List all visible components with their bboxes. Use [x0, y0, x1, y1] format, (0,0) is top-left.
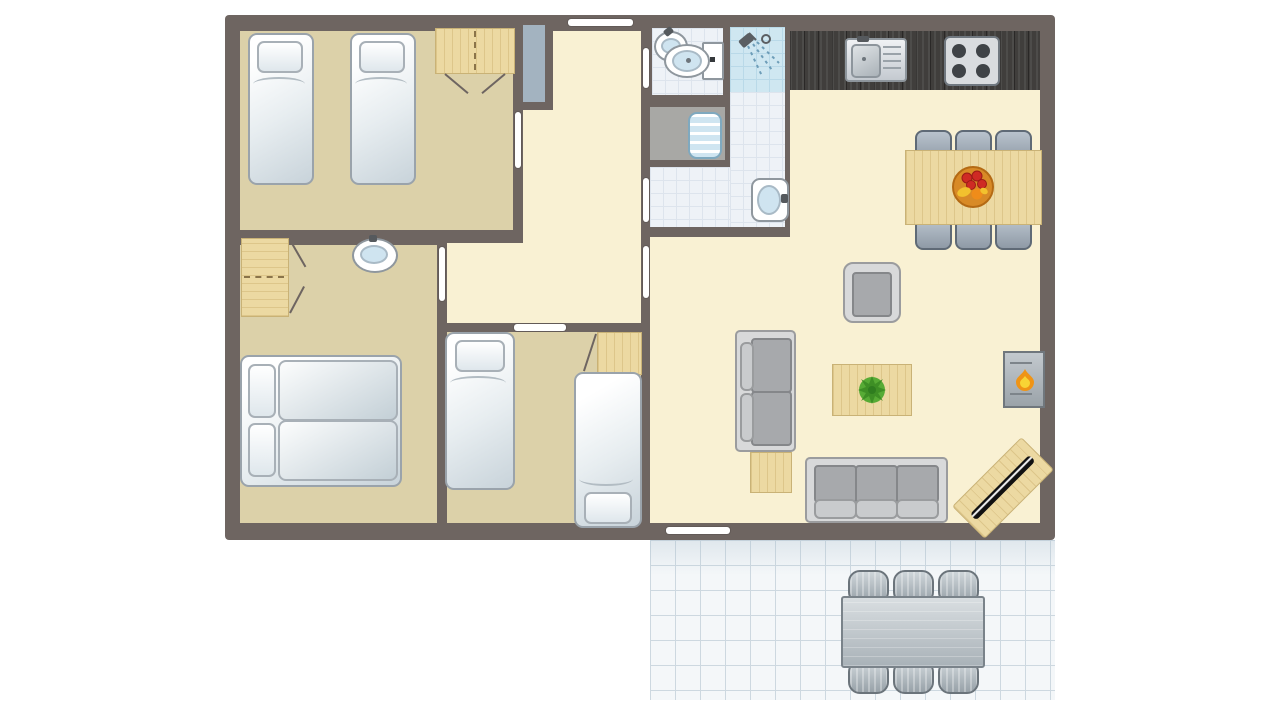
toilet-door: [643, 48, 649, 88]
fruit-bowl: [951, 165, 995, 209]
bathroom-washbasin: [751, 178, 789, 222]
bedroom-2-door: [439, 247, 445, 301]
burner: [976, 64, 990, 78]
sink-faucet: [857, 36, 869, 42]
mattress: [278, 420, 398, 481]
sofa-seat-cushion: [855, 499, 898, 519]
sofa-cushion: [751, 338, 792, 393]
bed-pillow: [584, 492, 632, 524]
shower-head-icon: [736, 30, 784, 86]
sink-drainer: [883, 46, 901, 73]
blanket-edge: [355, 77, 407, 89]
living-room-door: [643, 246, 649, 298]
floor-plan: [0, 0, 1280, 720]
blanket-edge: [450, 376, 506, 388]
bed-pillow: [257, 41, 303, 73]
sofa-seat-cushion: [896, 499, 939, 519]
bed-pillow: [248, 423, 276, 477]
burner: [952, 64, 966, 78]
front-door: [568, 19, 633, 26]
side-table: [750, 452, 792, 493]
fireplace: [1003, 351, 1045, 408]
washbasin-bowl: [360, 245, 388, 264]
double-bed: [240, 355, 402, 487]
washbasin: [352, 238, 398, 273]
garden-table: [841, 596, 985, 668]
terrace-door: [666, 527, 730, 534]
bed-pillow: [248, 364, 276, 418]
kitchen-counter: [790, 31, 1040, 90]
single-bed: [350, 33, 416, 185]
wardrobe-split-line: [244, 276, 284, 278]
sofa-cushion: [751, 391, 792, 446]
bedroom-1-door: [515, 112, 521, 168]
plant: [857, 375, 887, 405]
hall-closet: [523, 25, 545, 102]
hallway-floor-mid: [523, 110, 641, 243]
wardrobe: [435, 28, 515, 74]
dining-table: [905, 150, 1042, 225]
wardrobe: [597, 332, 642, 375]
toilet-drain: [686, 58, 691, 63]
blanket-edge: [253, 77, 305, 89]
sofa-back-cushion: [896, 465, 939, 503]
single-bed: [574, 372, 642, 528]
bathroom-washbasin-bowl: [757, 185, 781, 215]
toilet-bowl: [664, 44, 710, 78]
sofa-back-pillow: [740, 342, 754, 391]
sink-basin: [851, 44, 881, 78]
three-seat-sofa: [805, 457, 948, 523]
hob: [944, 36, 1000, 86]
radiator-appliance: [688, 112, 722, 159]
armchair: [843, 262, 901, 323]
kitchen-sink: [845, 38, 907, 82]
two-seat-sofa: [735, 330, 796, 452]
hallway-floor-low: [447, 243, 641, 323]
bathroom-floor-left: [650, 167, 730, 227]
sofa-back-cushion: [814, 465, 857, 503]
single-bed: [248, 33, 314, 185]
bathroom-door: [643, 178, 649, 222]
fireplace-vent: [1010, 362, 1032, 364]
fireplace-vent: [1010, 393, 1032, 395]
coffee-table: [832, 364, 912, 416]
bed-pillow: [359, 41, 405, 73]
single-bed: [445, 332, 515, 490]
washbasin-faucet: [369, 235, 377, 242]
bedroom-3-door: [514, 324, 566, 331]
sink-basin-drain: [862, 57, 866, 61]
sofa-back-pillow: [740, 393, 754, 442]
mattress: [278, 360, 398, 421]
blanket-edge: [579, 474, 633, 486]
armchair-cushion: [852, 272, 892, 317]
sofa-seat-cushion: [814, 499, 857, 519]
sofa-back-cushion: [855, 465, 898, 503]
toilet-flush-button: [710, 57, 715, 62]
bed-pillow: [455, 340, 505, 372]
bathroom-washbasin-faucet: [781, 194, 788, 203]
burner: [952, 44, 966, 58]
wardrobe: [241, 238, 289, 317]
wardrobe-split-line: [474, 31, 476, 70]
hallway-floor-top: [553, 31, 641, 110]
flame-icon: [1014, 368, 1036, 392]
burner: [976, 44, 990, 58]
